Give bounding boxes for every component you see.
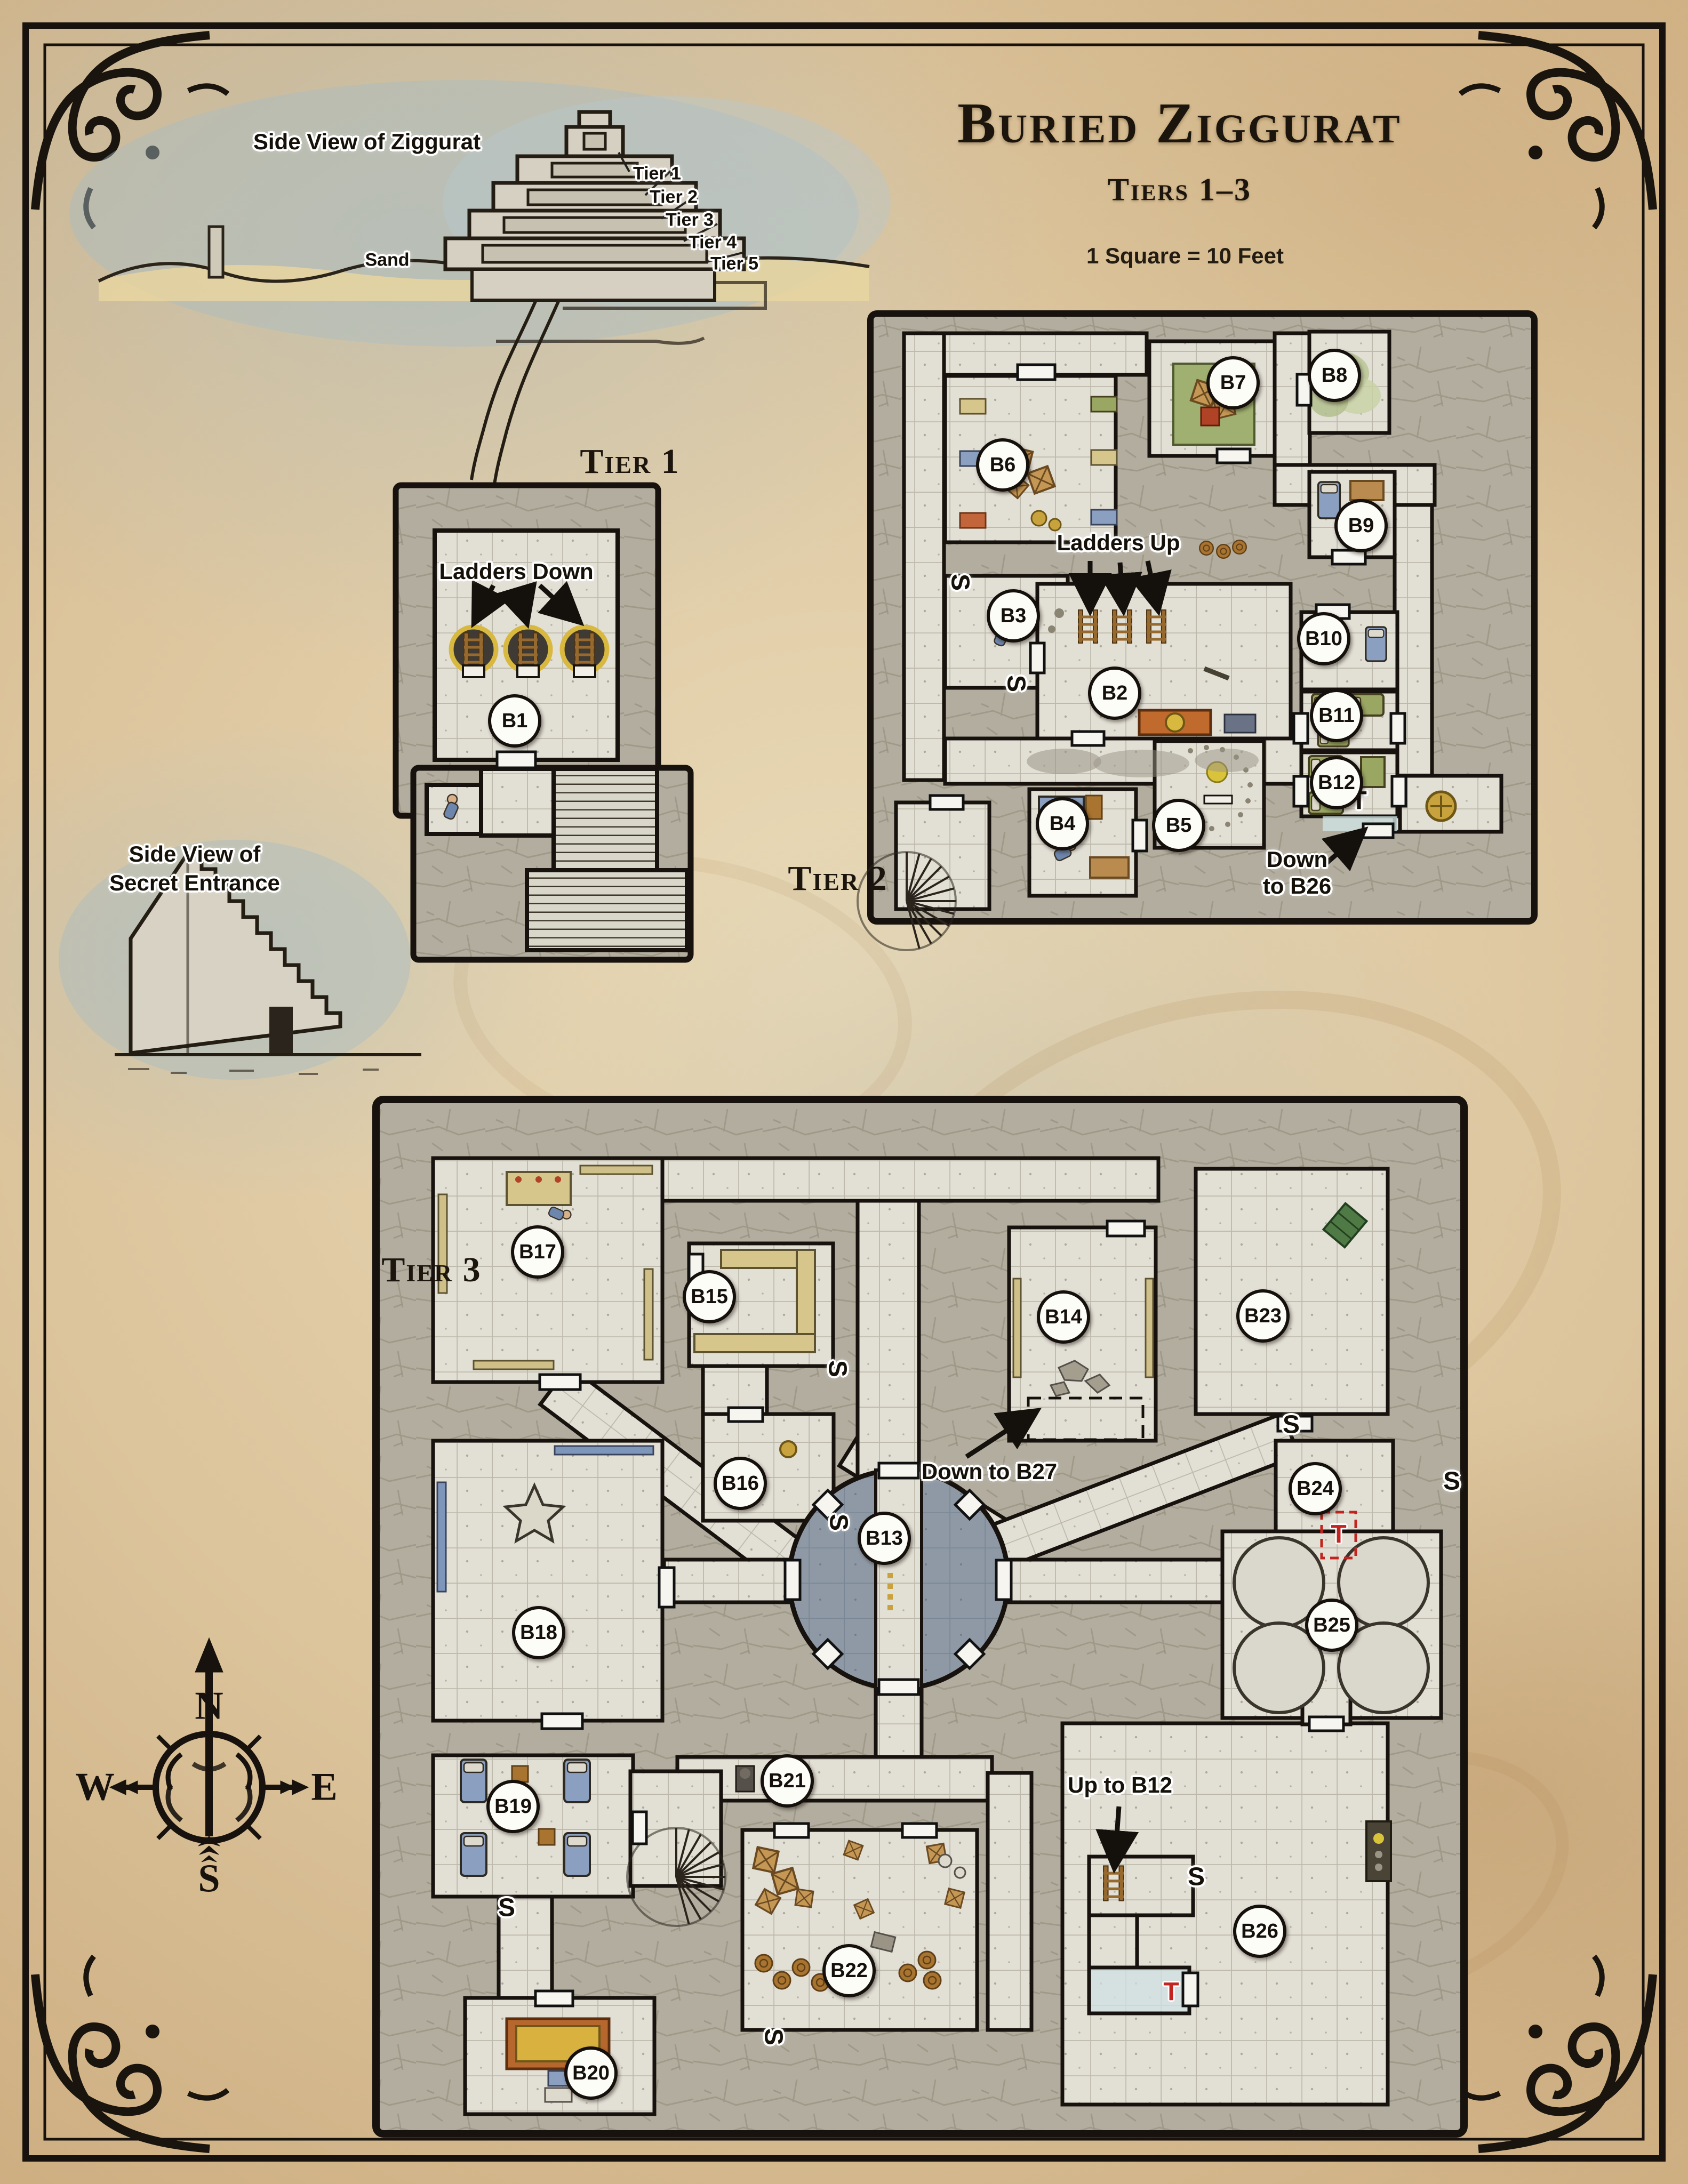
secret-door-marker: S xyxy=(498,1893,515,1923)
room-badge-b3: B3 xyxy=(987,589,1040,643)
down-to-b26-line2: to B26 xyxy=(1263,873,1331,899)
secret-entrance-label-line2: Secret Entrance xyxy=(109,870,280,896)
ziggurat-tier1-callout: Tier 1 xyxy=(633,164,681,184)
b13-bridge xyxy=(876,1470,922,1689)
tier2-heading: Tier 2 xyxy=(788,858,887,899)
ziggurat-tier4-callout: Tier 4 xyxy=(689,232,737,253)
room-badge-b5: B5 xyxy=(1152,799,1205,852)
compass-rose-art xyxy=(110,1638,308,1862)
page-subtitle: Tiers 1–3 xyxy=(1108,172,1252,208)
room-badge-b20: B20 xyxy=(564,2046,618,2100)
room-badge-b1: B1 xyxy=(488,694,541,748)
secret-door-marker: S xyxy=(823,1360,852,1377)
compass-north: N xyxy=(195,1684,223,1729)
secret-door-marker: S xyxy=(1188,1862,1205,1892)
room-badge-b14: B14 xyxy=(1037,1290,1090,1344)
down-to-b26-line1: Down xyxy=(1267,847,1327,872)
ladders-down-label: Ladders Down xyxy=(439,559,593,584)
room-badge-b18: B18 xyxy=(512,1606,565,1659)
b21-statue xyxy=(736,1766,754,1792)
up-to-b12-label: Up to B12 xyxy=(1068,1772,1172,1798)
room-badge-b15: B15 xyxy=(683,1270,736,1323)
room-badge-b21: B21 xyxy=(761,1754,814,1808)
room-badge-b19: B19 xyxy=(486,1780,540,1833)
secret-door-marker: S xyxy=(1283,1410,1300,1440)
room-badge-b17: B17 xyxy=(511,1225,564,1279)
room-badge-b16: B16 xyxy=(714,1457,767,1510)
sand-label: Sand xyxy=(365,250,409,271)
room-badge-b22: B22 xyxy=(822,1944,876,1997)
room-badge-b9: B9 xyxy=(1334,499,1388,552)
room-badge-b26: B26 xyxy=(1233,1905,1286,1958)
ziggurat-tier5-callout: Tier 5 xyxy=(710,254,758,275)
tier1-heading: Tier 1 xyxy=(580,441,679,482)
room-badge-b12: B12 xyxy=(1310,756,1363,809)
room-badge-b23: B23 xyxy=(1236,1289,1290,1343)
down-to-b27-label: Down to B27 xyxy=(922,1459,1057,1484)
trap-marker: T xyxy=(1331,1520,1346,1549)
map-page: Buried Ziggurat Tiers 1–3 1 Square = 10 … xyxy=(0,0,1688,2184)
secret-door-marker: S xyxy=(1443,1467,1460,1496)
room-badge-b8: B8 xyxy=(1308,349,1361,402)
tier2-map-art xyxy=(858,314,1534,950)
room-badge-b11: B11 xyxy=(1310,689,1363,742)
room-b23 xyxy=(1196,1169,1388,1414)
secret-door-marker: S xyxy=(824,1514,853,1531)
trap-marker: T xyxy=(1163,1978,1179,2007)
room-b18 xyxy=(433,1441,662,1721)
secret-door-marker: S xyxy=(1002,675,1031,692)
map-artwork xyxy=(0,0,1688,2184)
room-badge-b4: B4 xyxy=(1036,797,1089,850)
tier3-heading: Tier 3 xyxy=(381,1250,481,1290)
ziggurat-tier3-callout: Tier 3 xyxy=(666,210,714,231)
secret-door-marker: S xyxy=(946,574,975,591)
tier1-map-art xyxy=(396,485,691,960)
room-badge-b24: B24 xyxy=(1289,1462,1342,1515)
compass-south: S xyxy=(198,1857,220,1902)
compass-west: W xyxy=(75,1765,115,1810)
secret-entrance-label-line1: Side View of xyxy=(129,841,261,867)
compass-east: E xyxy=(311,1765,337,1810)
room-badge-b10: B10 xyxy=(1297,612,1350,665)
room-badge-b6: B6 xyxy=(976,438,1029,492)
room-badge-b25: B25 xyxy=(1305,1599,1358,1652)
door xyxy=(497,752,535,768)
map-scale-note: 1 Square = 10 Feet xyxy=(1086,243,1284,269)
spiral-stair-room xyxy=(896,802,989,909)
ziggurat-tier2-callout: Tier 2 xyxy=(650,187,698,208)
room-badge-b7: B7 xyxy=(1206,356,1260,409)
side-view-ziggurat-label: Side View of Ziggurat xyxy=(253,129,481,155)
secret-door-marker: S xyxy=(759,2028,788,2045)
room-badge-b2: B2 xyxy=(1088,667,1141,720)
page-title: Buried Ziggurat xyxy=(957,91,1402,157)
ladder-down-icons xyxy=(451,627,607,677)
ladders-up-label: Ladders Up xyxy=(1057,530,1180,556)
room-badge-b13: B13 xyxy=(858,1512,911,1565)
